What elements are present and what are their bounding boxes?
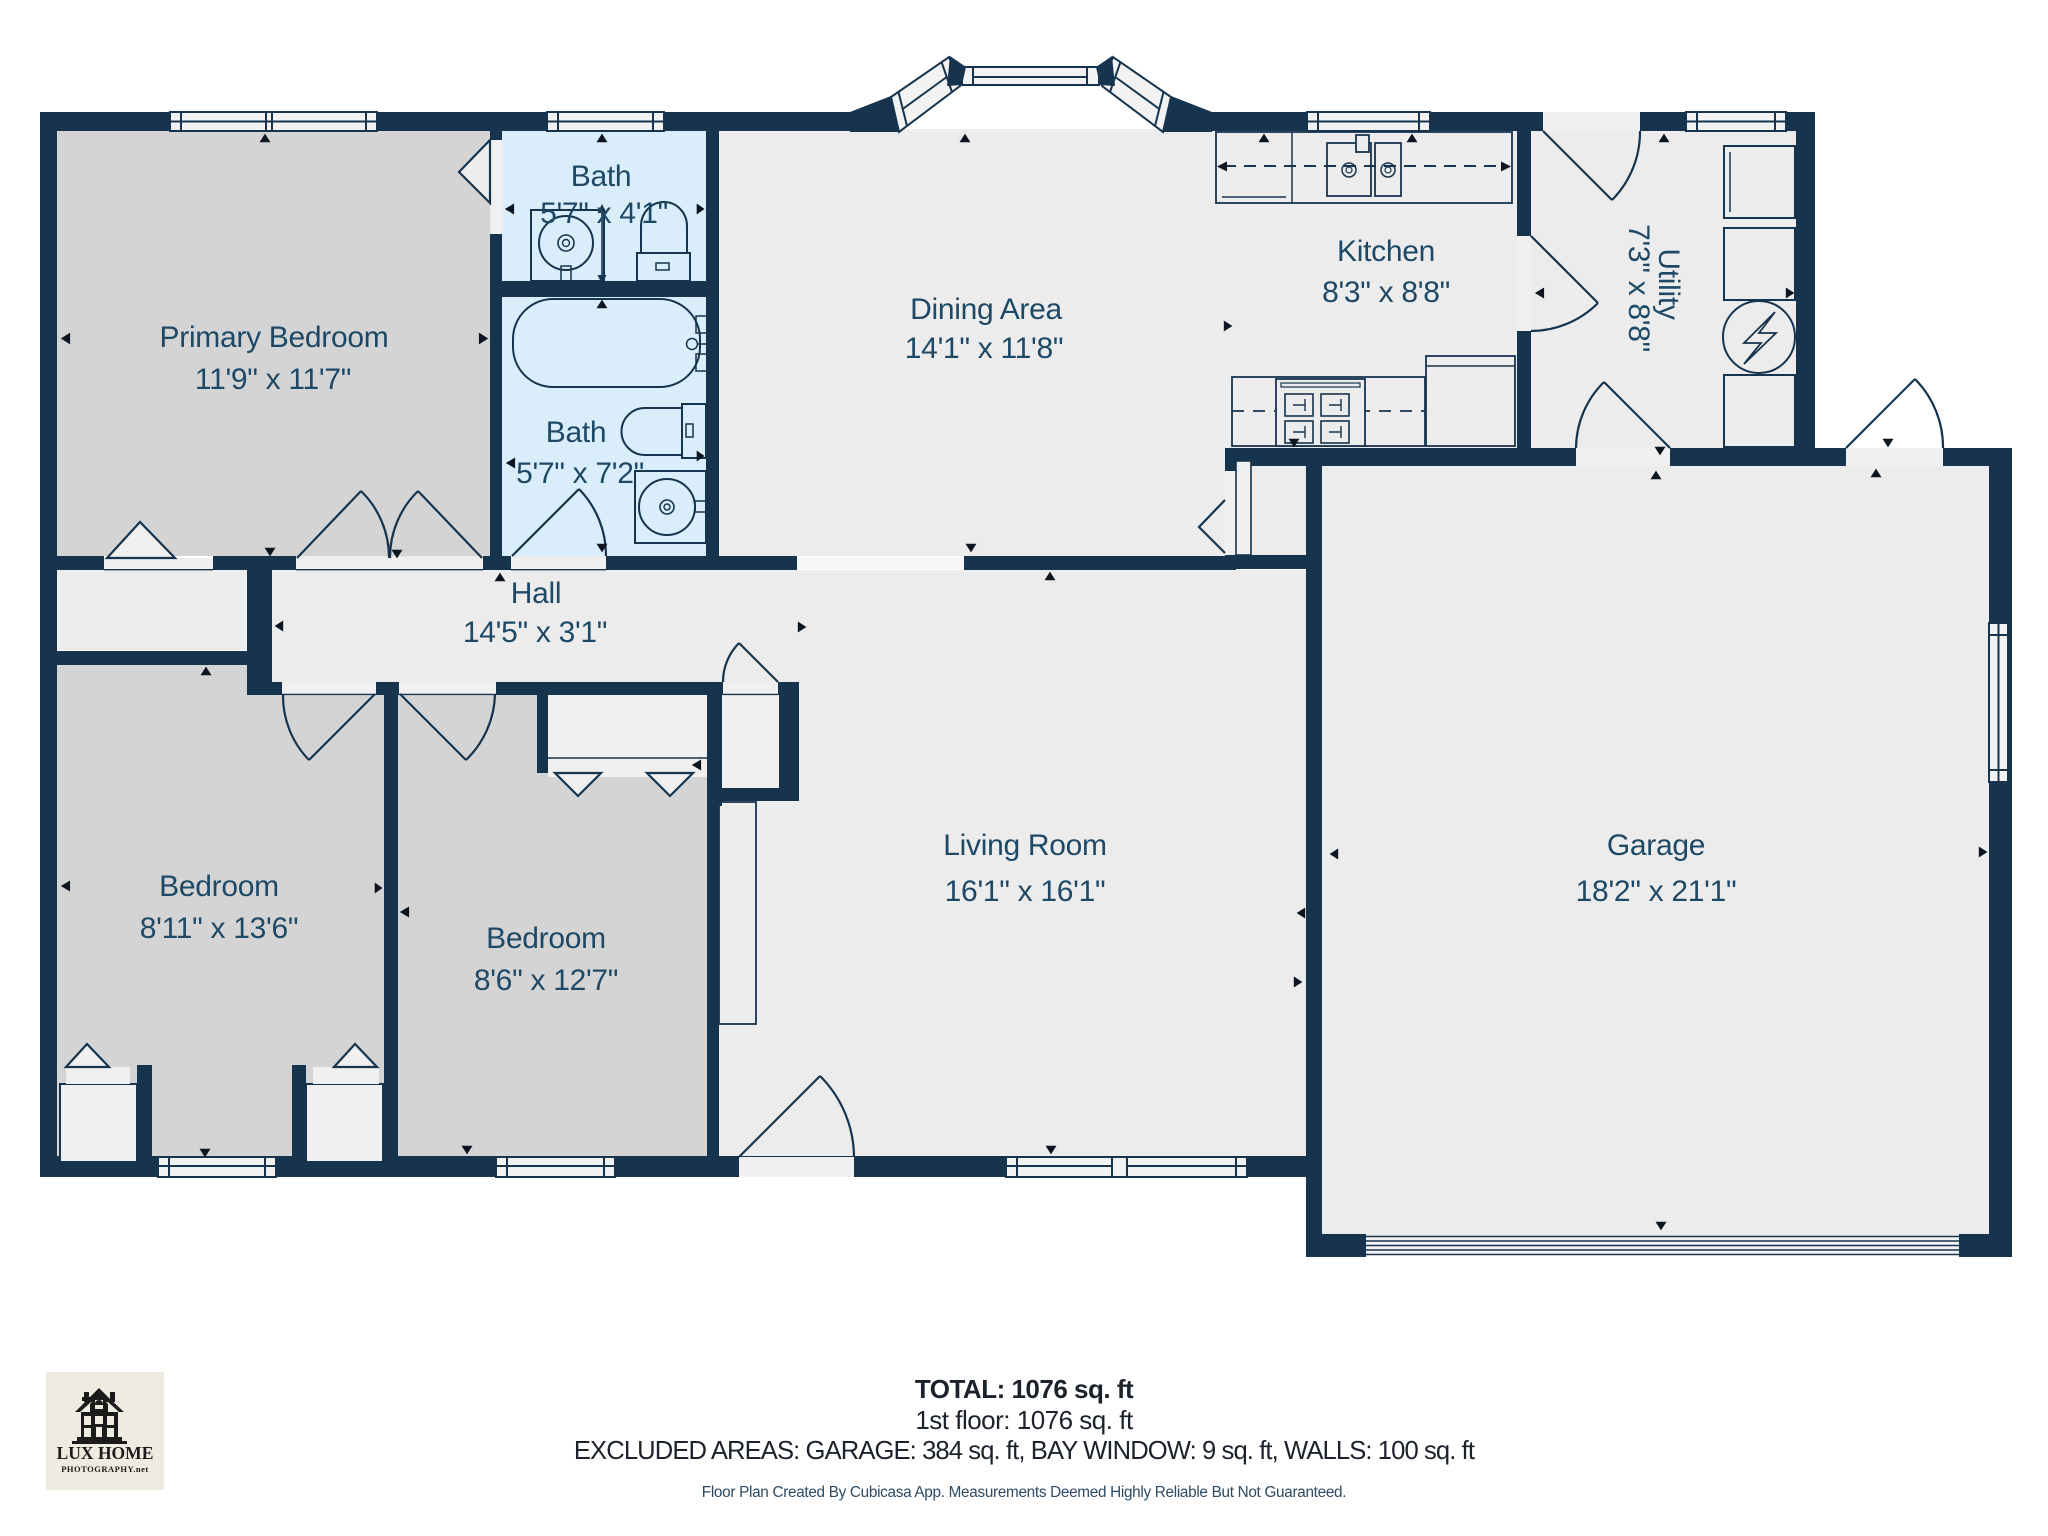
- svg-text:16'1" x 16'1": 16'1" x 16'1": [945, 875, 1106, 908]
- svg-text:Dining Area: Dining Area: [910, 293, 1062, 326]
- svg-text:Primary Bedroom: Primary Bedroom: [160, 321, 389, 354]
- svg-text:11'9" x 11'7": 11'9" x 11'7": [195, 363, 351, 396]
- svg-text:Bedroom: Bedroom: [486, 922, 606, 955]
- svg-text:5'7" x 7'2": 5'7" x 7'2": [516, 457, 644, 490]
- svg-text:Kitchen: Kitchen: [1337, 235, 1435, 268]
- svg-text:8'11" x 13'6": 8'11" x 13'6": [140, 912, 298, 945]
- svg-text:1st floor: 1076 sq. ft: 1st floor: 1076 sq. ft: [915, 1405, 1134, 1435]
- svg-text:Living Room: Living Room: [943, 829, 1106, 862]
- svg-text:8'6" x 12'7": 8'6" x 12'7": [474, 964, 618, 997]
- svg-text:PHOTOGRAPHY.net: PHOTOGRAPHY.net: [61, 1464, 149, 1474]
- svg-text:18'2" x 21'1": 18'2" x 21'1": [1576, 875, 1737, 908]
- svg-text:Bedroom: Bedroom: [159, 870, 279, 903]
- svg-text:Bath: Bath: [571, 160, 632, 193]
- svg-text:Bath: Bath: [546, 416, 607, 449]
- svg-text:Hall: Hall: [511, 577, 561, 610]
- svg-text:14'5" x 3'1": 14'5" x 3'1": [463, 616, 607, 649]
- svg-text:5'7" x 4'1": 5'7" x 4'1": [540, 197, 668, 230]
- svg-text:EXCLUDED AREAS: GARAGE: 384 sq: EXCLUDED AREAS: GARAGE: 384 sq. ft, BAY …: [574, 1437, 1475, 1465]
- svg-text:7'3" x 8'8": 7'3" x 8'8": [1622, 224, 1655, 352]
- svg-text:14'1" x 11'8": 14'1" x 11'8": [905, 332, 1063, 365]
- svg-text:8'3" x 8'8": 8'3" x 8'8": [1322, 276, 1450, 309]
- svg-text:Floor Plan Created By Cubicasa: Floor Plan Created By Cubicasa App. Meas…: [702, 1484, 1346, 1501]
- svg-text:Garage: Garage: [1607, 829, 1705, 862]
- svg-text:TOTAL: 1076 sq. ft: TOTAL: 1076 sq. ft: [915, 1374, 1134, 1404]
- svg-text:LUX HOME: LUX HOME: [57, 1443, 154, 1463]
- svg-text:Utility: Utility: [1652, 248, 1685, 320]
